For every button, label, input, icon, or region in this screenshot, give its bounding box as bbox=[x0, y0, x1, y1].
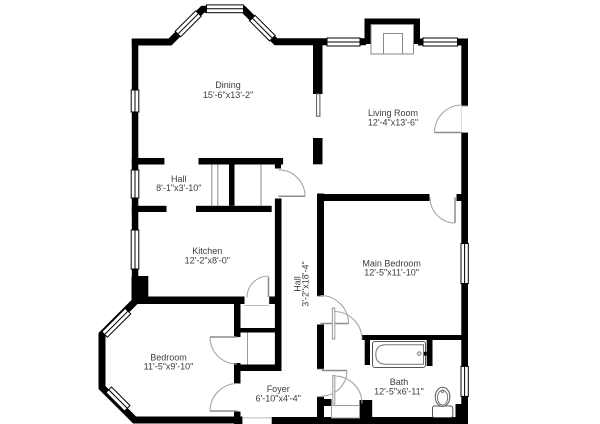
svg-text:Foyer: Foyer bbox=[267, 384, 290, 394]
svg-text:3'-2"x18'-4": 3'-2"x18'-4" bbox=[300, 261, 310, 306]
svg-text:6'-10"x4'-4": 6'-10"x4'-4" bbox=[256, 393, 301, 403]
svg-text:Kitchen: Kitchen bbox=[192, 246, 222, 256]
svg-text:12'-2"x8'-0": 12'-2"x8'-0" bbox=[185, 255, 230, 265]
svg-text:12'-5"x6'-11": 12'-5"x6'-11" bbox=[374, 386, 424, 396]
svg-text:11'-5"x9'-10": 11'-5"x9'-10" bbox=[144, 362, 194, 372]
svg-text:15'-6"x13'-2": 15'-6"x13'-2" bbox=[203, 90, 253, 100]
svg-text:12'-4"x13'-6": 12'-4"x13'-6" bbox=[368, 117, 418, 127]
svg-text:8'-1"x3'-10": 8'-1"x3'-10" bbox=[156, 183, 201, 193]
svg-text:Dining: Dining bbox=[215, 80, 241, 90]
svg-text:12'-5"x11'-10": 12'-5"x11'-10" bbox=[364, 268, 419, 278]
